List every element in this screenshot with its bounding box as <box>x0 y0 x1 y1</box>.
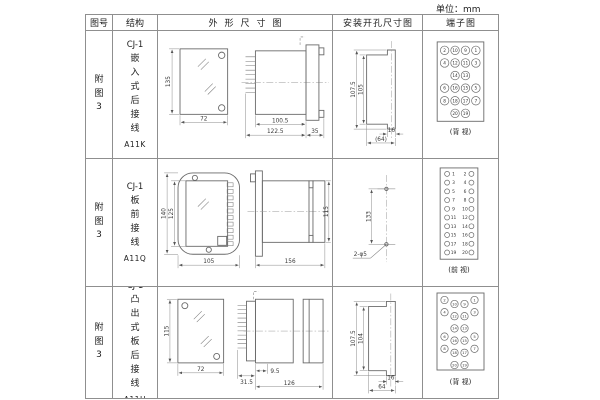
terminal-number: 16 <box>452 86 458 92</box>
install-drawing-a11k: 107.5 105 16 (64) <box>333 31 422 158</box>
terminal-number: 10 <box>462 206 468 212</box>
header-install-label: 安装开孔尺寸图 <box>343 16 413 29</box>
structure-cell-row2: CJ-1 板前接线 A11Q <box>113 159 158 287</box>
terminal-number: 17 <box>462 351 467 355</box>
dim-cutout-outer: 107.5 <box>351 330 357 347</box>
terminal-cell-row1: (背 视) 2109141211314136161558181772019 <box>423 31 498 159</box>
dim-cutout-inner: 105 <box>359 84 365 95</box>
figure-cell-row1: 附图3 <box>86 31 113 159</box>
dim-front-inner-height: 125 <box>169 208 175 219</box>
outline-cell-row1: 135 72 100.5 122.5 35 <box>158 31 333 159</box>
figure-cell-row3: 附图3 <box>86 287 113 398</box>
structure-cell-row1: CJ-1 嵌入式后接线 A11K <box>113 31 158 159</box>
dim-side-height: 115 <box>324 206 330 217</box>
outline-drawing-a11k: 135 72 100.5 122.5 35 <box>158 31 332 158</box>
outline-cell-row2: 140 125 105 156 115 <box>158 159 333 287</box>
terminal-number: 9 <box>452 206 455 212</box>
terminal-number: 3 <box>475 60 478 66</box>
terminal-pin <box>445 198 450 203</box>
model-label: CJ-1 <box>127 40 144 50</box>
type-code: A11K <box>124 140 146 149</box>
terminal-number: 12 <box>462 215 468 221</box>
terminal-number: 14 <box>452 73 458 79</box>
terminal-number: 17 <box>463 98 469 104</box>
terminal-pin <box>469 198 474 203</box>
header-figure: 图号 <box>86 15 113 31</box>
terminal-number: 20 <box>452 363 457 367</box>
install-cell-row1: 107.5 105 16 (64) <box>333 31 423 159</box>
terminal-number: 20 <box>462 250 468 256</box>
header-terminal: 端子图 <box>423 15 498 31</box>
terminal-cell-row2: (前 视) 1357911131517192468101214161820 <box>423 159 498 287</box>
terminal-pin <box>445 250 450 255</box>
terminal-pin <box>469 233 474 238</box>
mounting-label: 凸出式板后接线 <box>130 294 140 392</box>
terminal-caption: (背 视) <box>450 377 472 386</box>
dim-side-depth1: 31.5 <box>240 380 253 386</box>
terminal-number: 12 <box>452 60 458 66</box>
terminal-number: 19 <box>451 250 457 256</box>
terminal-number: 10 <box>452 48 458 54</box>
front-view: 135 72 <box>166 49 228 125</box>
dim-front-height: 115 <box>164 325 170 336</box>
header-structure-label: 结构 <box>126 16 144 29</box>
terminal-pin <box>469 180 474 185</box>
terminal-pin <box>469 206 474 211</box>
terminal-number: 13 <box>451 224 457 230</box>
terminal-number: 19 <box>463 111 469 117</box>
structure-cell-row3: CJ-1 凸出式板后接线 A11H <box>113 287 158 398</box>
terminal-number: 6 <box>464 189 467 195</box>
dim-front-width: 72 <box>197 367 205 373</box>
type-code: A11Q <box>124 254 147 263</box>
terminal-number: 8 <box>443 98 446 104</box>
header-structure: 结构 <box>113 15 158 31</box>
terminal-number: 5 <box>452 189 455 195</box>
side-view: 156 115 <box>247 171 330 268</box>
terminal-number: 1 <box>452 171 455 177</box>
install-drawing-a11q: 133 2-φ5 <box>333 159 422 286</box>
terminal-pin <box>469 250 474 255</box>
dim-cutout-width: (64) <box>375 137 387 143</box>
hole-callout: 2-φ5 <box>354 252 367 258</box>
terminal-pin <box>445 206 450 211</box>
terminal-caption: (前 视) <box>448 265 470 274</box>
dim-side-depth2: 122.5 <box>267 129 284 135</box>
dim-side-depth3: 126 <box>284 381 295 387</box>
terminal-number: 2 <box>464 171 467 177</box>
terminal-number: 4 <box>464 180 467 186</box>
terminal-number: 16 <box>452 339 457 343</box>
terminal-pin <box>445 180 450 185</box>
dim-cutout-inner: 104 <box>359 333 365 344</box>
terminal-number: 18 <box>452 98 458 104</box>
figure-number: 附图3 <box>94 74 104 116</box>
terminal-number: 8 <box>464 198 467 204</box>
dim-side-depth2: 9.5 <box>270 369 279 375</box>
terminal-number: 2 <box>443 48 446 54</box>
header-figure-label: 图号 <box>90 16 108 29</box>
outline-cell-row3: 115 72 31.5 9.5 126 <box>158 287 333 398</box>
figure-number: 附图3 <box>94 202 104 244</box>
terminal-number: 11 <box>462 315 467 319</box>
terminal-number: 16 <box>462 233 468 239</box>
front-view: 140 125 105 <box>162 173 240 268</box>
terminal-number: 18 <box>452 351 457 355</box>
dim-front-width: 72 <box>200 116 208 122</box>
dim-cutout-width: 64 <box>378 384 386 390</box>
header-outline: 外形尺寸图 <box>158 15 333 31</box>
terminal-number: 7 <box>452 198 455 204</box>
terminal-pin <box>445 189 450 194</box>
dim-slot-width: 16 <box>387 376 395 382</box>
terminal-diagram-a11h: (背 视) 2109141211314136161558181772019 <box>423 287 498 398</box>
terminal-number: 11 <box>463 60 469 66</box>
terminal-number: 15 <box>463 86 469 92</box>
terminal-number: 2 <box>443 298 445 302</box>
terminal-number: 14 <box>462 224 468 230</box>
terminal-number: 10 <box>452 302 457 306</box>
header-terminal-label: 端子图 <box>446 16 476 29</box>
terminal-diagram-a11k: (背 视) 2109141211314136161558181772019 <box>423 31 498 158</box>
terminal-number: 12 <box>452 315 457 319</box>
terminal-number: 4 <box>443 60 446 66</box>
terminal-caption: (背 视) <box>450 127 472 136</box>
terminal-number: 14 <box>452 327 457 331</box>
dim-front-width: 105 <box>203 259 214 265</box>
terminal-pin <box>445 224 450 229</box>
catalog-page: { "unit_label": "单位：mm", "table": { "hea… <box>0 0 600 400</box>
dim-front-outer-height: 140 <box>162 208 168 219</box>
install-cell-row2: 133 2-φ5 <box>333 159 423 287</box>
terminal-pin <box>469 189 474 194</box>
mounting-label: 板前接线 <box>130 195 140 251</box>
type-code: A11H <box>124 395 146 398</box>
terminal-pin <box>469 241 474 246</box>
terminal-number: 7 <box>475 98 478 104</box>
dim-cutout-outer: 107.5 <box>351 81 357 98</box>
header-outline-label: 外形尺寸图 <box>208 16 288 29</box>
dim-side-depth3: 35 <box>311 129 319 135</box>
terminal-number: 20 <box>452 111 458 117</box>
header-install: 安装开孔尺寸图 <box>333 15 423 31</box>
terminal-number: 6 <box>443 86 446 92</box>
terminal-cell-row3: (背 视) 2109141211314136161558181772019 <box>423 287 498 398</box>
terminal-number: 19 <box>462 363 467 367</box>
terminal-number: 13 <box>462 327 467 331</box>
terminal-number: 17 <box>451 241 457 247</box>
dim-side-depth1: 100.5 <box>272 118 289 124</box>
terminal-number: 13 <box>463 73 469 79</box>
outline-drawing-a11q: 140 125 105 156 115 <box>158 159 332 286</box>
terminal-number: 5 <box>475 86 478 92</box>
terminal-pin <box>445 171 450 176</box>
terminal-pin <box>469 215 474 220</box>
terminal-number: 1 <box>475 48 478 54</box>
terminal-pin <box>469 224 474 229</box>
terminal-pin <box>445 233 450 238</box>
terminal-number: 9 <box>464 48 467 54</box>
terminal-number: 15 <box>462 339 467 343</box>
install-drawing-a11h: 107.5 104 16 64 <box>333 287 422 398</box>
terminal-pin <box>469 171 474 176</box>
model-label: CJ-1 <box>127 182 144 192</box>
figure-number: 附图3 <box>94 322 104 364</box>
terminal-number: 11 <box>451 215 457 221</box>
side-view: 31.5 9.5 126 <box>238 291 329 389</box>
install-cell-row3: 107.5 104 16 64 <box>333 287 423 398</box>
dim-slot-width: 16 <box>388 128 396 134</box>
terminal-number: 3 <box>452 180 455 186</box>
front-view: 115 72 <box>164 299 223 376</box>
terminal-diagram-a11q: (前 视) 1357911131517192468101214161820 <box>423 159 498 286</box>
dim-front-height: 135 <box>166 76 172 87</box>
terminal-pin <box>445 215 450 220</box>
dim-side-length: 156 <box>285 259 296 265</box>
side-view: 100.5 122.5 35 <box>242 37 329 138</box>
mounting-label: 嵌入式后接线 <box>130 53 140 137</box>
dim-hole-span: 133 <box>367 211 373 222</box>
terminal-number: 18 <box>462 241 468 247</box>
outline-drawing-a11h: 115 72 31.5 9.5 126 <box>158 287 332 398</box>
spec-table: 图号 结构 外形尺寸图 安装开孔尺寸图 端子图 附图3 CJ-1 嵌入式后接线 … <box>85 14 499 399</box>
model-label: CJ-1 <box>127 287 144 291</box>
terminal-number: 15 <box>451 233 457 239</box>
terminal-number: 1 <box>473 298 475 302</box>
figure-cell-row2: 附图3 <box>86 159 113 287</box>
terminal-pin <box>445 241 450 246</box>
